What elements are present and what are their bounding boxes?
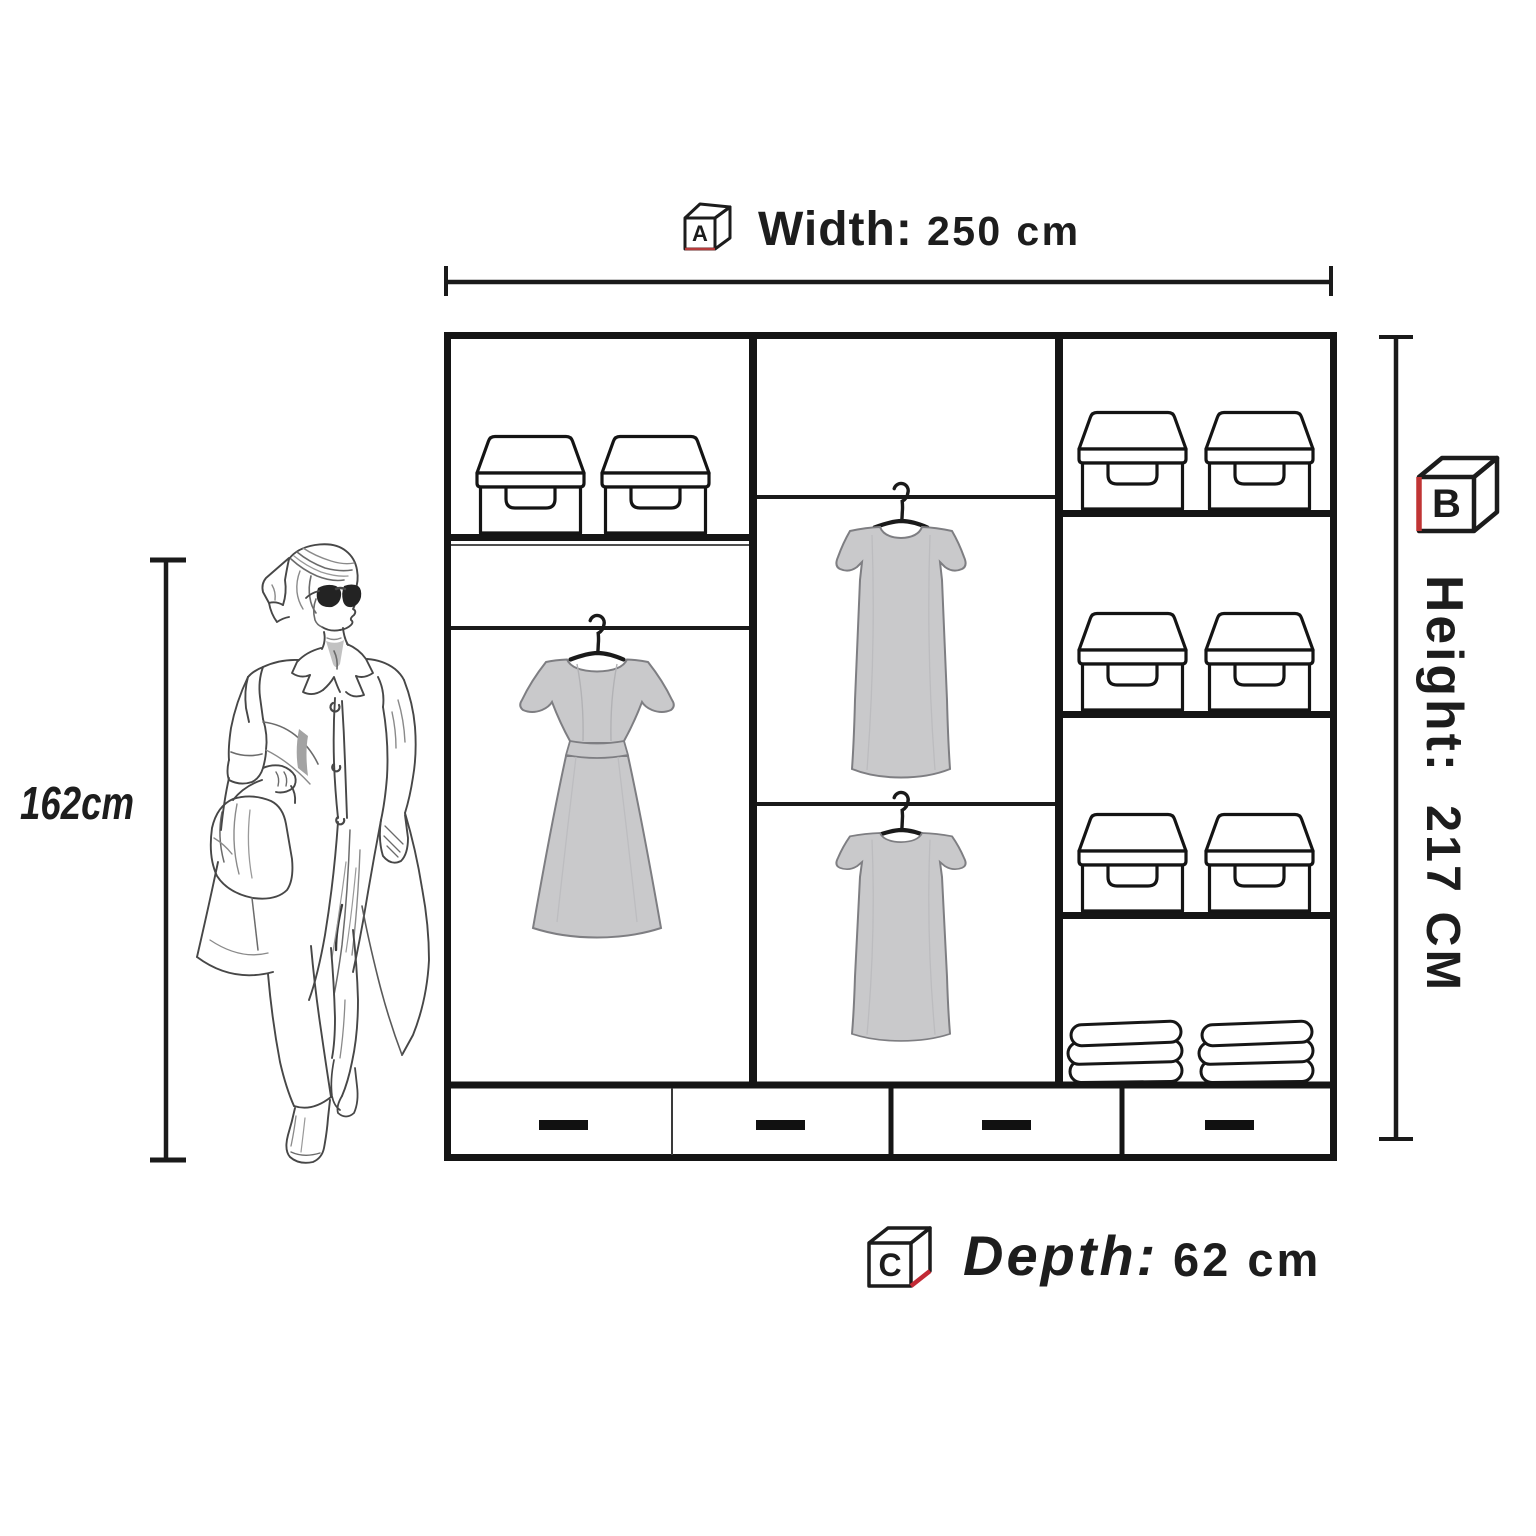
svg-text:162cm: 162cm	[20, 777, 134, 829]
svg-text:250 cm: 250 cm	[927, 208, 1080, 254]
svg-text:62 cm: 62 cm	[1173, 1233, 1321, 1286]
svg-text:Height:: Height:	[1415, 575, 1473, 774]
svg-text:A: A	[692, 221, 708, 246]
svg-text:Depth:: Depth:	[963, 1224, 1158, 1287]
svg-text:B: B	[1432, 482, 1461, 526]
svg-text:C: C	[878, 1247, 901, 1283]
svg-text:217 CM: 217 CM	[1416, 805, 1469, 993]
svg-text:Width:: Width:	[758, 203, 913, 256]
